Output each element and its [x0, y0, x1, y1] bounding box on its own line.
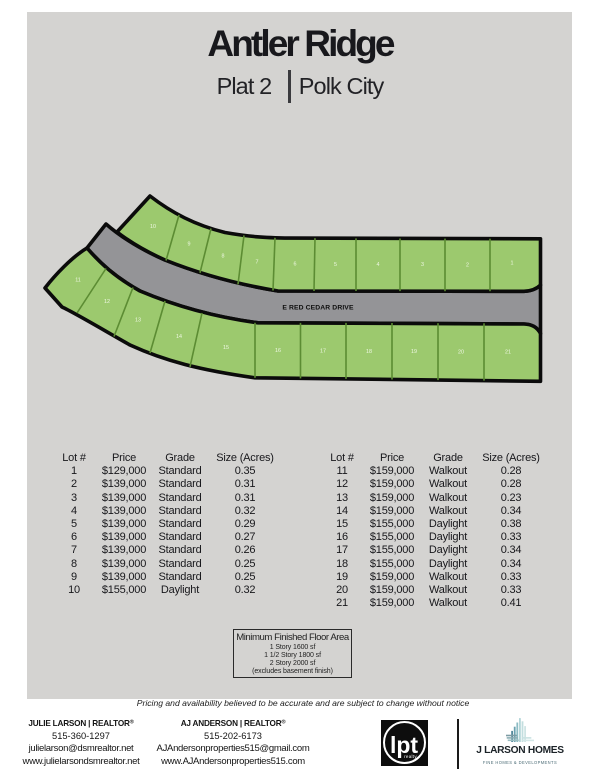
svg-text:20: 20: [458, 349, 464, 355]
svg-text:16: 16: [275, 348, 281, 354]
svg-text:8: 8: [222, 254, 225, 260]
svg-text:12: 12: [104, 299, 110, 305]
svg-text:7: 7: [256, 260, 259, 266]
svg-text:10: 10: [150, 224, 156, 230]
svg-text:13: 13: [135, 318, 141, 324]
svg-text:4: 4: [377, 262, 380, 268]
svg-text:2: 2: [466, 262, 469, 268]
svg-text:3: 3: [421, 262, 424, 268]
svg-text:9: 9: [188, 242, 191, 248]
svg-text:17: 17: [320, 349, 326, 355]
svg-text:14: 14: [176, 334, 182, 340]
svg-text:18: 18: [366, 349, 372, 355]
svg-text:1: 1: [511, 261, 514, 267]
svg-text:15: 15: [223, 345, 229, 351]
svg-text:5: 5: [334, 262, 337, 268]
svg-text:19: 19: [411, 349, 417, 355]
svg-text:11: 11: [75, 278, 81, 284]
svg-text:6: 6: [294, 262, 297, 268]
svg-text:21: 21: [505, 350, 511, 356]
svg-text:E RED CEDAR DRIVE: E RED CEDAR DRIVE: [282, 305, 354, 312]
